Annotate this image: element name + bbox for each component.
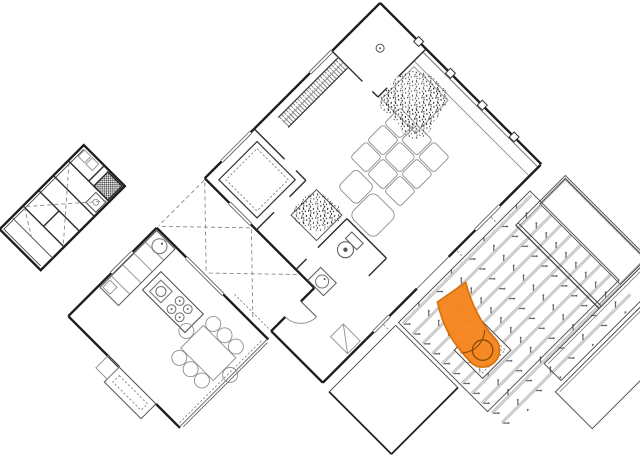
- plan-canvas: [0, 0, 640, 474]
- floor-plan-drawing: [0, 0, 640, 474]
